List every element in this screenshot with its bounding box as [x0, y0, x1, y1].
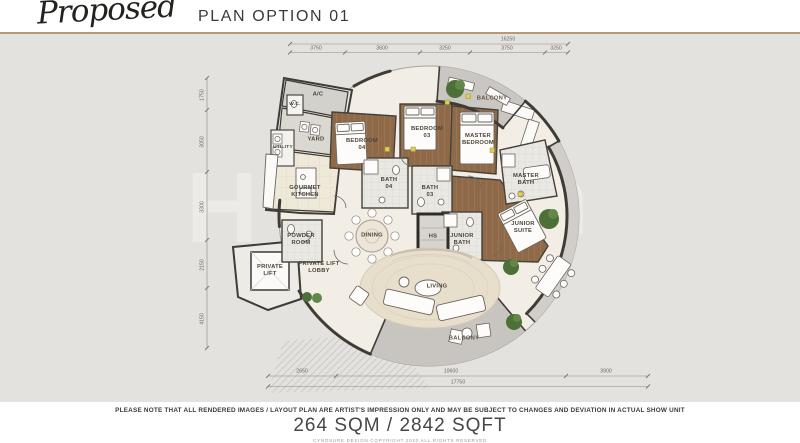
dim-left-segment-4: 2150	[200, 259, 205, 271]
room-label-living: LIVING	[412, 283, 462, 290]
room-label-master-bath: MASTER BATH	[511, 173, 541, 187]
dim-bottom-segment-2: 10600	[444, 369, 458, 374]
room-label-dining: DINING	[352, 232, 392, 239]
room-label-yard: YARD	[301, 136, 331, 143]
dim-left-segment-3: 3300	[200, 201, 205, 213]
copyright-text: CYNOSURE DESIGN COPYRIGHT 2020 ALL RIGHT…	[0, 439, 800, 443]
page-title-plain: PLAN OPTION 01	[198, 9, 350, 25]
dim-top-segment-3: 3250	[439, 46, 451, 51]
dim-left-segment-2: 3050	[200, 136, 205, 148]
unit-area-text: 264 SQM / 2842 SQFT	[0, 416, 800, 437]
floor-plan-page: H n	[0, 0, 800, 443]
room-label-ac: A/C	[305, 91, 331, 98]
room-label-bedroom-03: BEDROOM 03	[407, 126, 447, 140]
room-label-bedroom-04: BEDROOM 04	[342, 138, 382, 152]
room-label-junior-bath: JUNIOR BATH	[448, 233, 476, 247]
room-label-junior-suite: JUNIOR SUITE	[508, 221, 538, 235]
dim-bottom-segment-3: 3900	[600, 369, 612, 374]
dim-top-segment-5: 3250	[550, 46, 562, 51]
dim-left-segment-5: 4150	[200, 313, 205, 325]
dim-top-overall: 16250	[501, 37, 515, 42]
dim-bottom-segment-1: 2650	[296, 369, 308, 374]
page-title-script: Proposed	[36, 0, 176, 30]
room-label-balcony-bottom: BALCONY	[434, 335, 494, 342]
disclaimer-text: PLEASE NOTE THAT ALL RENDERED IMAGES / L…	[0, 402, 800, 415]
room-label-gourmet-kitchen: GOURMET KITCHEN	[281, 185, 329, 199]
dim-top-segment-4: 3750	[501, 46, 513, 51]
floor-plan-graphic	[0, 0, 800, 443]
dim-top-segment-1: 3750	[310, 46, 322, 51]
dim-bottom-overall: 17750	[451, 380, 465, 385]
room-label-powder-room: POWDER ROOM	[285, 233, 317, 247]
room-label-hs: HS	[423, 233, 443, 240]
room-label-utility: UTILITY	[270, 145, 296, 151]
room-label-master-bedroom: MASTER BEDROOM	[458, 133, 498, 147]
footer-bar: PLEASE NOTE THAT ALL RENDERED IMAGES / L…	[0, 402, 800, 443]
dim-left-segment-1: 1750	[200, 89, 205, 101]
room-label-bath-04: BATH 04	[378, 177, 400, 191]
room-label-private-lift-lobby: PRIVATE LIFT LOBBY	[297, 261, 341, 275]
header-bar: Proposed PLAN OPTION 01	[0, 0, 800, 34]
room-label-wc: W.C.	[285, 102, 305, 108]
room-label-bath-03: BATH 03	[419, 185, 441, 199]
dim-top-segment-2: 3600	[376, 46, 388, 51]
room-label-private-lift: PRIVATE LIFT	[255, 264, 285, 278]
room-label-balcony-top: BALCONY	[462, 95, 522, 102]
